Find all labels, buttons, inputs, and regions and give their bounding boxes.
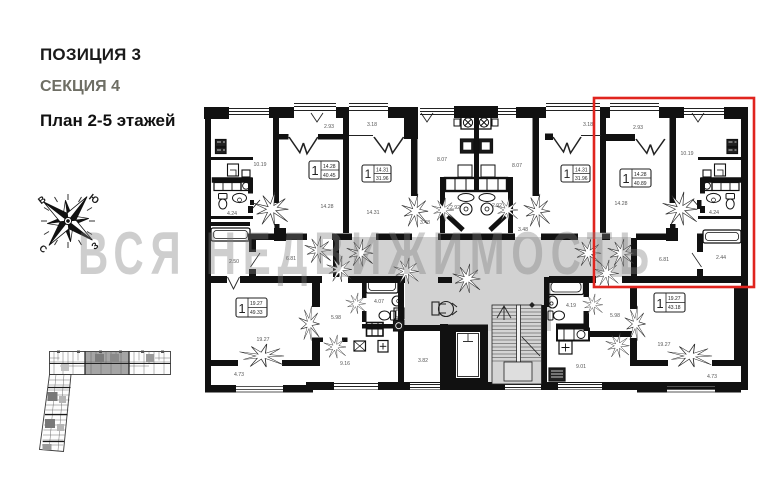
svg-text:19.27: 19.27 — [257, 337, 270, 343]
svg-text:10.19: 10.19 — [254, 162, 267, 168]
svg-text:14.31: 14.31 — [376, 168, 389, 174]
svg-text:1: 1 — [311, 163, 318, 178]
svg-text:31.96: 31.96 — [376, 176, 389, 182]
svg-text:14.28: 14.28 — [634, 172, 647, 178]
svg-text:49.33: 49.33 — [250, 310, 263, 316]
svg-text:43.18: 43.18 — [668, 305, 681, 311]
svg-text:3.18: 3.18 — [367, 122, 377, 128]
svg-text:3.82: 3.82 — [418, 358, 428, 364]
svg-text:4.73: 4.73 — [234, 372, 244, 378]
svg-text:4.24: 4.24 — [227, 211, 237, 217]
svg-text:4.07: 4.07 — [374, 299, 384, 305]
svg-text:10.19: 10.19 — [681, 151, 694, 157]
svg-text:8.07: 8.07 — [512, 163, 522, 169]
svg-text:1: 1 — [564, 167, 571, 181]
svg-text:19.27: 19.27 — [668, 296, 681, 302]
svg-text:9.16: 9.16 — [340, 361, 350, 367]
svg-text:14.28: 14.28 — [321, 204, 334, 210]
svg-text:2.93: 2.93 — [324, 124, 334, 130]
svg-text:2.92: 2.92 — [450, 205, 460, 211]
svg-text:6.81: 6.81 — [659, 257, 669, 263]
svg-text:2.44: 2.44 — [716, 255, 726, 261]
svg-text:1: 1 — [238, 301, 245, 316]
svg-text:4.24: 4.24 — [709, 210, 719, 216]
svg-text:14.31: 14.31 — [367, 210, 380, 216]
svg-text:5.98: 5.98 — [331, 315, 341, 321]
svg-text:2.93: 2.93 — [633, 125, 643, 131]
svg-text:3.18: 3.18 — [583, 122, 593, 128]
svg-text:8.07: 8.07 — [437, 157, 447, 163]
svg-text:1: 1 — [622, 171, 629, 186]
svg-text:14.31: 14.31 — [575, 168, 588, 174]
svg-text:40.89: 40.89 — [634, 181, 647, 187]
svg-text:5.98: 5.98 — [610, 313, 620, 319]
svg-text:С: С — [37, 243, 49, 256]
svg-text:4.19: 4.19 — [566, 303, 576, 309]
svg-text:1: 1 — [365, 167, 372, 181]
svg-text:14.28: 14.28 — [615, 201, 628, 207]
svg-text:2.92: 2.92 — [492, 203, 502, 209]
svg-text:1: 1 — [656, 296, 663, 311]
svg-text:Ю: Ю — [86, 192, 101, 207]
svg-text:14.28: 14.28 — [323, 164, 336, 170]
svg-text:ВСЯ НЕДВИЖИМОСТЬ: ВСЯ НЕДВИЖИМОСТЬ — [78, 220, 651, 287]
svg-text:4.73: 4.73 — [707, 374, 717, 380]
svg-text:40.45: 40.45 — [323, 173, 336, 179]
svg-text:9.01: 9.01 — [576, 364, 586, 370]
svg-text:31.96: 31.96 — [575, 176, 588, 182]
svg-text:19.27: 19.27 — [658, 342, 671, 348]
svg-text:19.27: 19.27 — [250, 301, 263, 307]
